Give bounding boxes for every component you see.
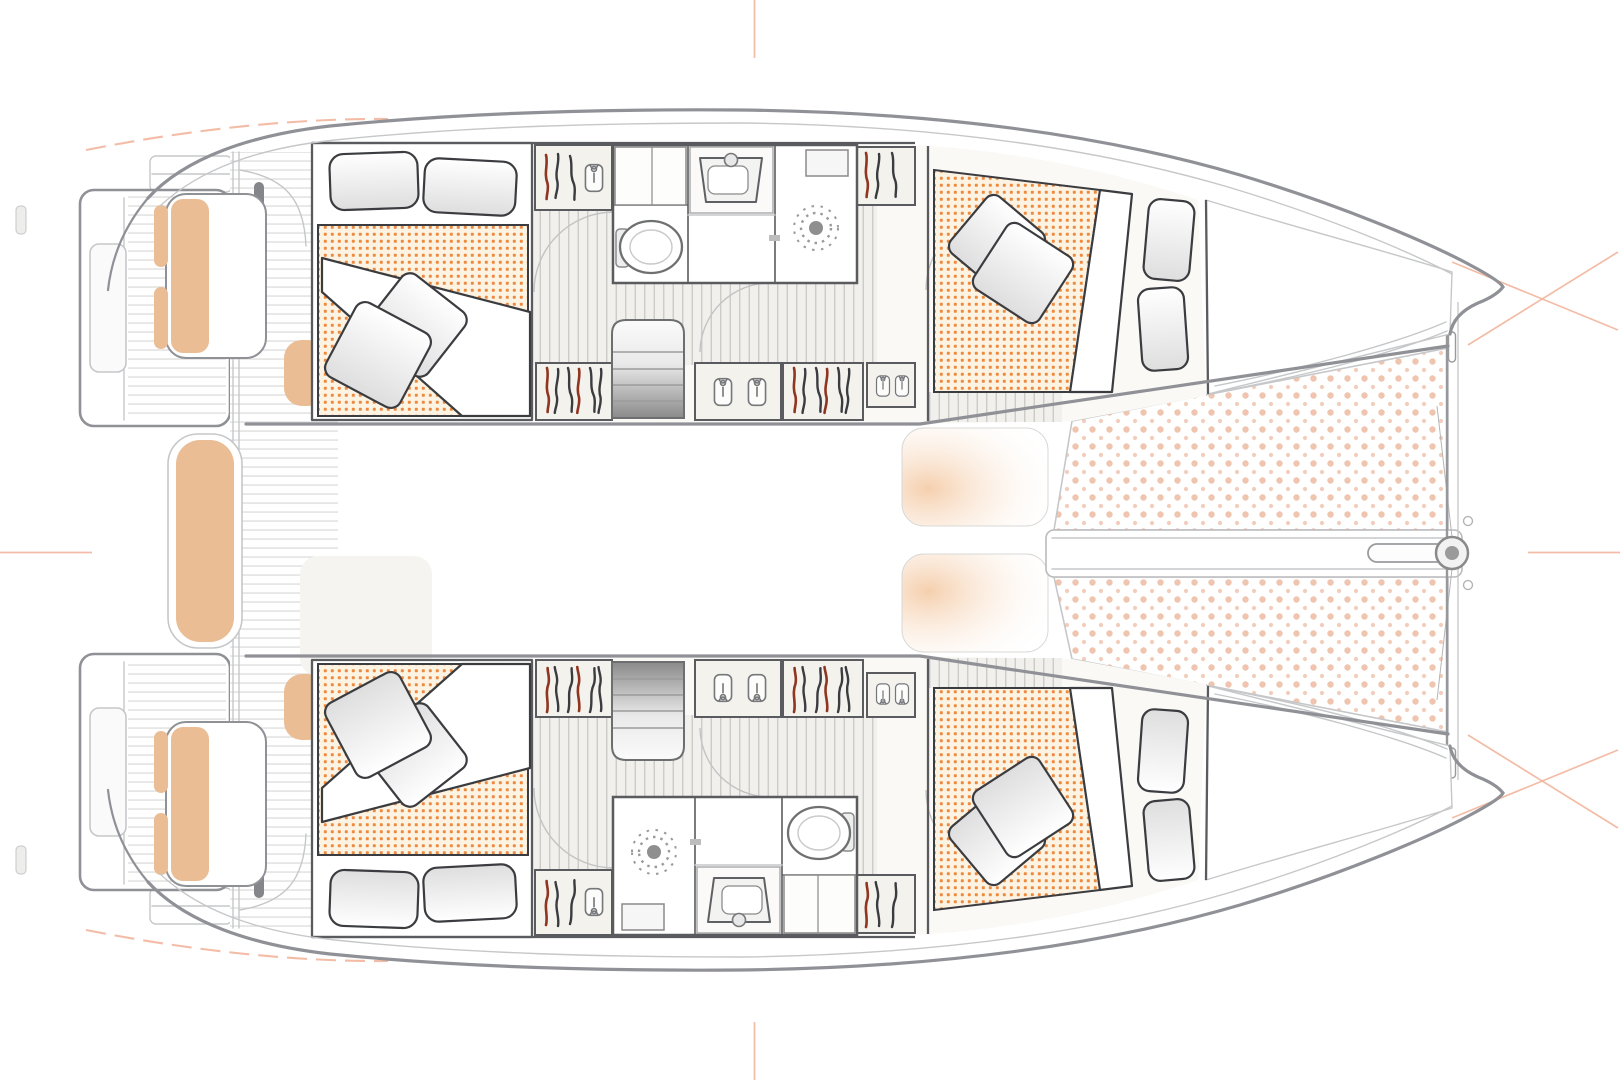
transom-step <box>90 244 126 372</box>
beam-bolt <box>1464 517 1473 526</box>
seat-cushion <box>154 205 168 267</box>
foredeck-sunpad <box>902 554 1048 652</box>
catamaran-floorplan-page <box>0 0 1620 1080</box>
beam-slot <box>1449 332 1456 362</box>
bow-cross-mark <box>1452 262 1618 330</box>
bow-cross-mark <box>1452 750 1618 818</box>
aft-bench-starboard <box>154 722 266 886</box>
bench-cushion <box>171 727 209 881</box>
seat-cushion <box>154 813 168 875</box>
davit-tip <box>16 206 26 234</box>
cockpit-table-ghost <box>300 556 432 676</box>
port-bathroom <box>613 145 857 283</box>
bench-cushion <box>176 440 234 642</box>
seat-cushion <box>154 287 168 349</box>
davit-tip <box>16 846 26 874</box>
central-bench <box>168 434 242 648</box>
beam-bolt <box>1464 581 1473 590</box>
starboard-bathroom <box>613 797 857 935</box>
bench-cushion <box>171 199 209 353</box>
foredeck-sunpad <box>902 428 1048 526</box>
seat-cushion <box>154 731 168 793</box>
aft-bench-port <box>154 194 266 358</box>
transom-step <box>90 708 126 836</box>
catamaran-plan-figure <box>0 0 1620 1080</box>
